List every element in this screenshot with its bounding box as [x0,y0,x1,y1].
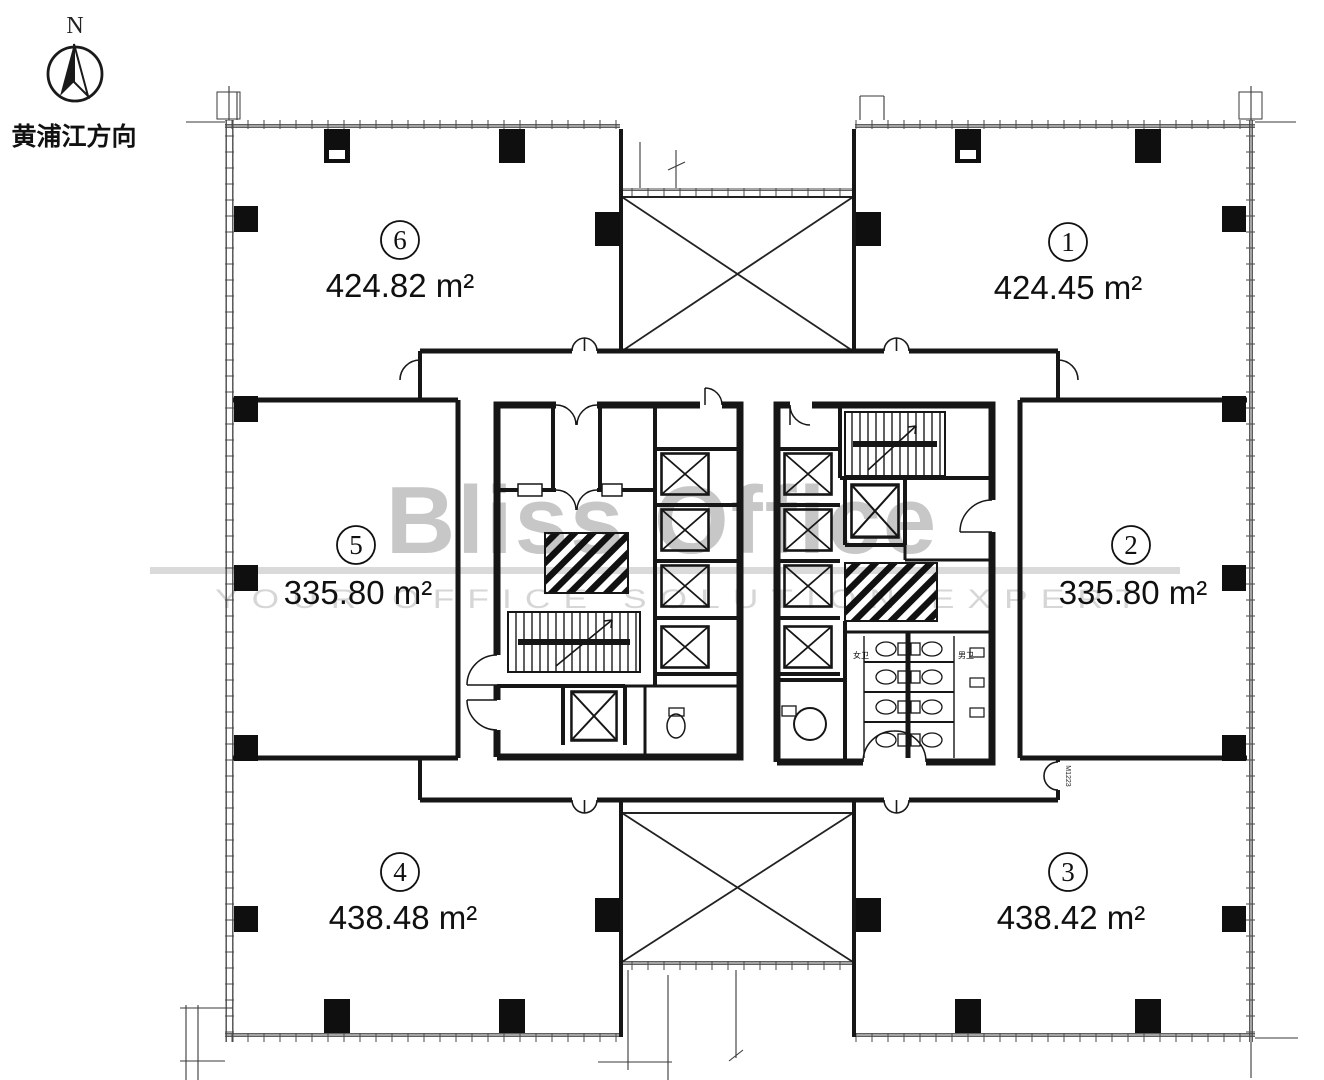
door-tag-label: M1223 [1064,765,1071,787]
unit-5-number: 5 [349,530,363,560]
floor-plan-canvas: Bliss Office YOUR OFFICE SOLUTION EXPERT… [0,0,1324,1080]
north-letter: N [66,13,83,39]
mens-wc-label: 男卫 [958,651,974,660]
unit-2-number: 2 [1124,530,1138,560]
river-direction-label: 黄浦江方向 [11,122,136,151]
unit-label-3: 3 438.42 m² [997,853,1146,936]
unit-label-4: 4 438.48 m² [329,853,478,936]
unit-4-number: 4 [393,857,407,887]
womens-wc-label: 女卫 [853,650,869,660]
north-compass: N 黄浦江方向 [11,13,136,151]
north-arrow-right [74,44,88,96]
unit-label-6: 6 424.82 m² [326,221,475,304]
unit-2-area: 335.80 m² [1059,574,1208,611]
unit-4-area: 438.48 m² [329,899,478,936]
unit-label-1: 1 424.45 m² [994,223,1143,306]
unit-6-number: 6 [393,225,407,255]
unit-5-area: 335.80 m² [284,574,433,611]
unit-1-area: 424.45 m² [994,269,1143,306]
unit-6-area: 424.82 m² [326,267,475,304]
unit-3-number: 3 [1061,857,1075,887]
unit-3-area: 438.42 m² [997,899,1146,936]
unit-1-number: 1 [1061,227,1075,257]
